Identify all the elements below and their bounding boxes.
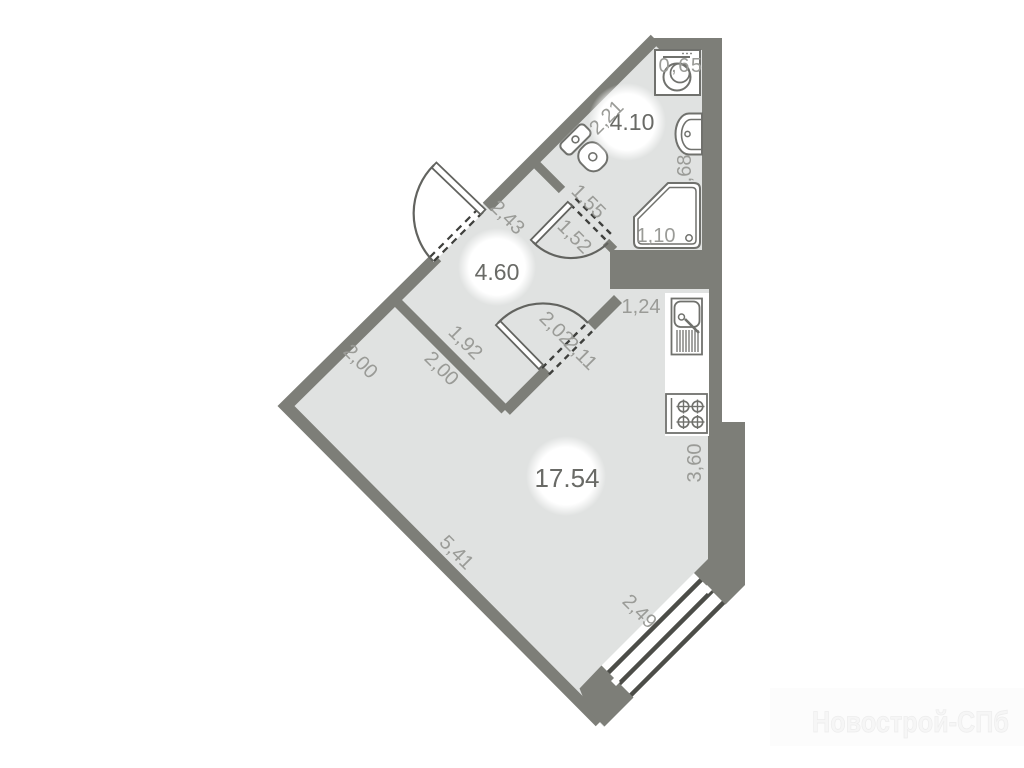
svg-text:17.54: 17.54 xyxy=(534,463,599,493)
svg-text:0,65: 0,65 xyxy=(659,55,704,77)
svg-text:Новострой-СПб: Новострой-СПб xyxy=(812,706,1009,739)
svg-text:4.60: 4.60 xyxy=(475,259,520,285)
svg-text:1,24: 1,24 xyxy=(622,296,661,318)
svg-text:1,10: 1,10 xyxy=(637,225,676,247)
svg-text:3,60: 3,60 xyxy=(684,444,706,483)
